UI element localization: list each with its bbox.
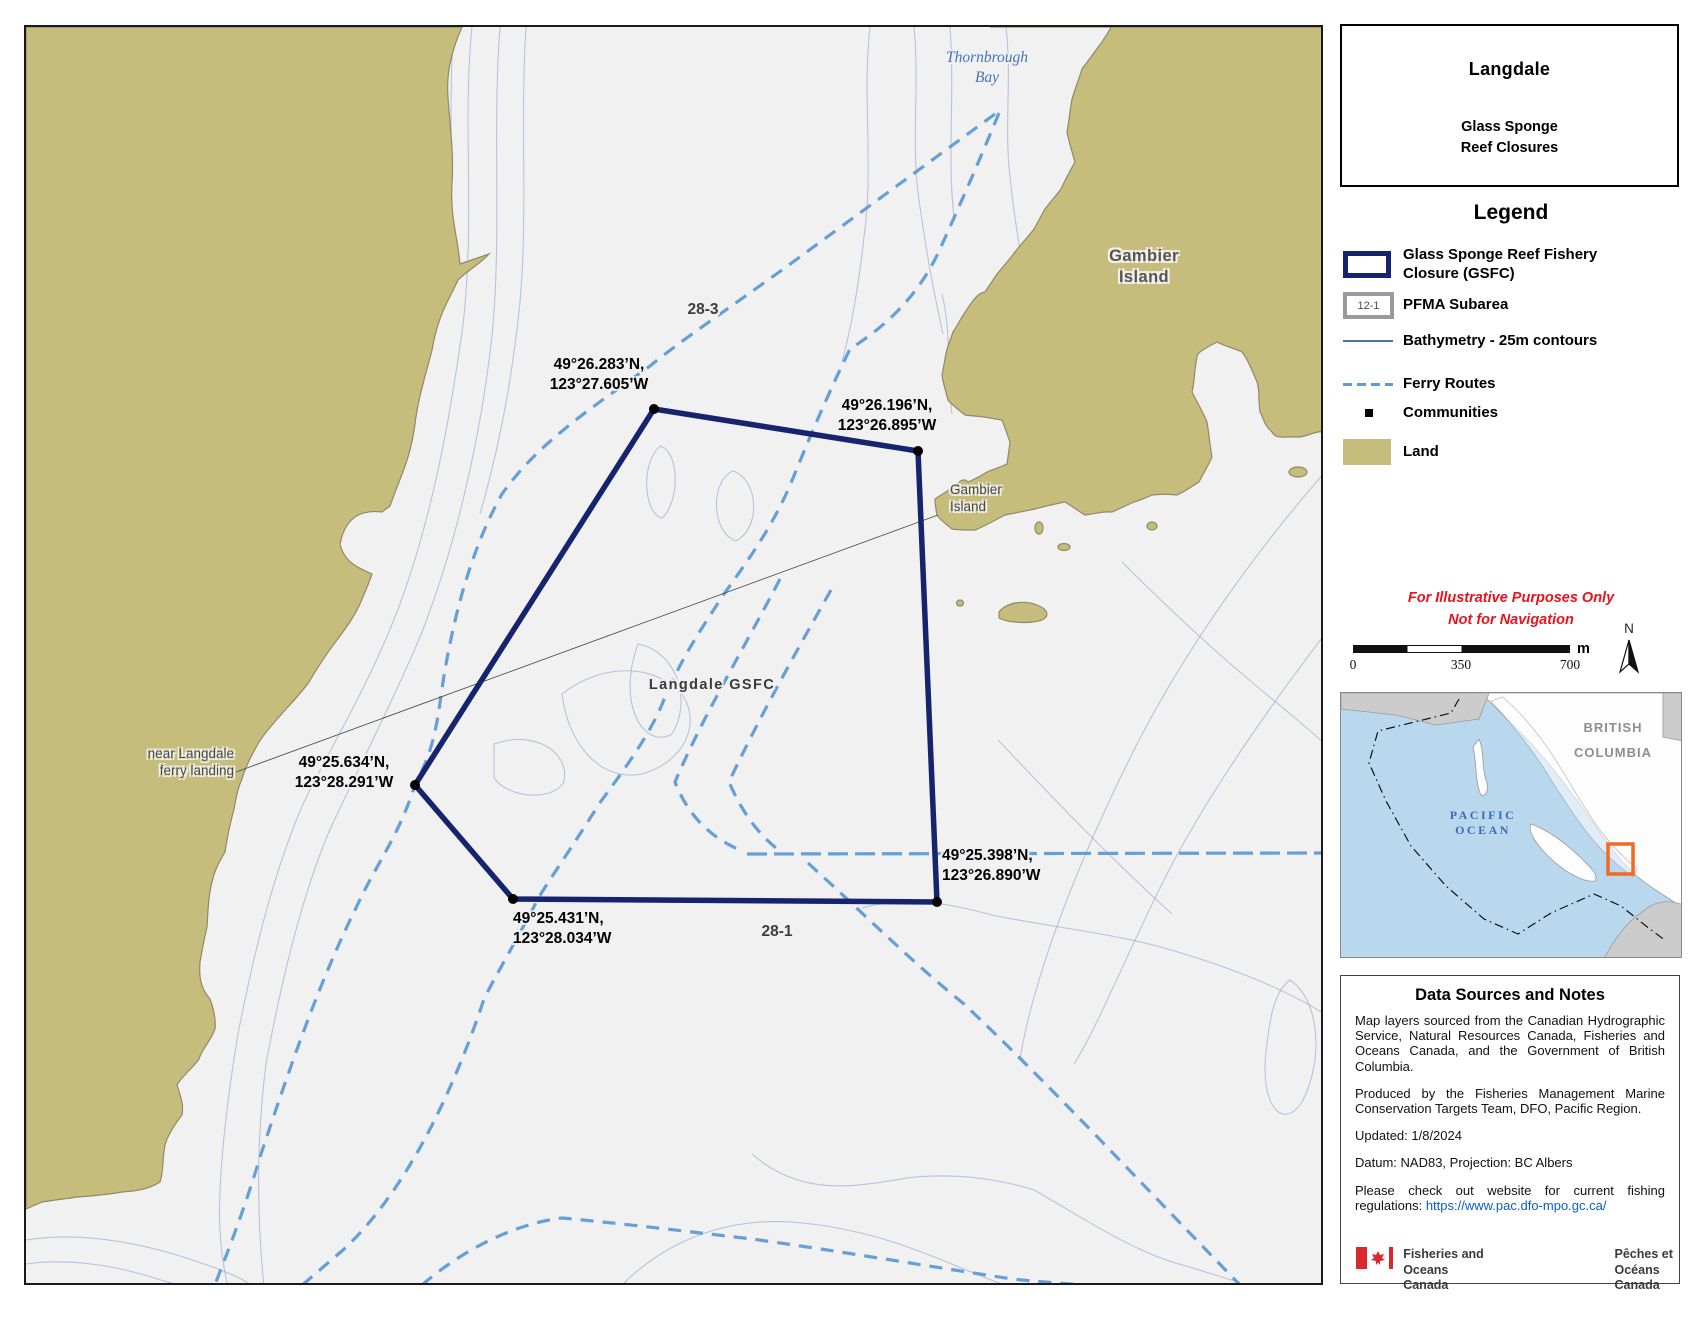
legend-item-pfma: 12-1 PFMA Subarea bbox=[1343, 292, 1678, 319]
scale-unit: m bbox=[1577, 641, 1590, 657]
notes-paragraph-produced: Produced by the Fisheries Management Mar… bbox=[1355, 1086, 1665, 1116]
land-shapes bbox=[26, 27, 1323, 1209]
closure-coordinate-ne: 49°26.196’N, 123°26.895’W bbox=[838, 396, 936, 437]
community-square-swatch bbox=[1365, 409, 1373, 417]
closure-coordinate-se: 49°25.398’N, 123°26.890’W bbox=[942, 846, 1040, 887]
legend-item-land: Land bbox=[1343, 439, 1678, 465]
bathymetry-line-swatch bbox=[1343, 340, 1393, 342]
scale-tick-350: 350 bbox=[1451, 657, 1471, 673]
closure-vertex bbox=[649, 404, 659, 414]
closure-coordinate-west: 49°25.634’N, 123°28.291’W bbox=[295, 753, 393, 794]
map-svg bbox=[26, 27, 1323, 1285]
pfma-swatch: 12-1 bbox=[1343, 292, 1394, 319]
islet bbox=[1035, 522, 1043, 534]
islet bbox=[1147, 522, 1157, 530]
thornbrough-bay-label: Thornbrough Bay bbox=[946, 48, 1028, 88]
inset-haida-gwaii bbox=[1473, 739, 1488, 795]
islet bbox=[957, 600, 964, 606]
closure-vertex bbox=[932, 897, 942, 907]
legend-heading: Legend bbox=[1340, 201, 1682, 225]
ferry-landing-label: near Langdale ferry landing bbox=[86, 746, 234, 780]
ferry-route bbox=[729, 590, 831, 852]
closure-vertex bbox=[508, 894, 518, 904]
legend-item-communities: Communities bbox=[1343, 403, 1678, 423]
inset-vancouver-island bbox=[1530, 824, 1596, 881]
page: { "map": { "place_labels": { "thornbroug… bbox=[0, 0, 1705, 1318]
gsfc-outline-swatch bbox=[1343, 251, 1391, 278]
scale-tick-700: 700 bbox=[1560, 657, 1580, 673]
map-title-box: Langdale Glass Sponge Reef Closures bbox=[1340, 24, 1679, 187]
west-shore-land bbox=[26, 27, 489, 1209]
inset-region-label: BRITISH COLUMBIA bbox=[1574, 720, 1652, 760]
inset-locator-map: BRITISH COLUMBIA PACIFIC OCEAN bbox=[1340, 692, 1682, 958]
notes-datum: Datum: NAD83, Projection: BC Albers bbox=[1355, 1155, 1665, 1170]
land-swatch bbox=[1343, 439, 1391, 465]
scale-tick-0: 0 bbox=[1350, 657, 1357, 673]
notes-updated: Updated: 1/8/2024 bbox=[1355, 1128, 1665, 1143]
legend-item-ferry: Ferry Routes bbox=[1343, 374, 1678, 394]
islet bbox=[999, 602, 1047, 622]
ferry-route bbox=[422, 1218, 1302, 1285]
north-arrow-icon bbox=[1616, 638, 1642, 676]
closure-vertex bbox=[410, 780, 420, 790]
ferry-dash-swatch bbox=[1343, 383, 1393, 386]
map-subtitle: Glass Sponge Reef Closures bbox=[1342, 117, 1677, 159]
data-sources-box: Data Sources and Notes Map layers source… bbox=[1340, 975, 1680, 1284]
scale-bar bbox=[1353, 645, 1570, 653]
map-canvas bbox=[24, 25, 1323, 1285]
north-arrow-label: N bbox=[1624, 621, 1634, 636]
ferry-route bbox=[675, 579, 780, 851]
wordmark-french: Pêches et Océans Canada bbox=[1615, 1247, 1705, 1294]
pfma-subarea-28-3-label: 28-3 bbox=[687, 300, 718, 320]
legend-item-gsfc: Glass Sponge Reef Fishery Closure (GSFC) bbox=[1343, 246, 1678, 284]
pfma-subarea-28-1-label: 28-1 bbox=[761, 922, 792, 942]
closure-coordinate-sw: 49°25.431’N, 123°28.034’W bbox=[513, 909, 611, 950]
islet bbox=[1058, 544, 1070, 551]
ferry-route bbox=[808, 863, 1242, 1285]
closure-coordinate-nw: 49°26.283’N, 123°27.605’W bbox=[550, 355, 648, 396]
legend-item-bathymetry: Bathymetry - 25m contours bbox=[1343, 331, 1678, 351]
gambier-island-label-small: Gambier Island bbox=[950, 481, 1002, 516]
regulations-link[interactable]: https://www.pac.dfo-mpo.gc.ca/ bbox=[1426, 1198, 1607, 1213]
inset-ocean-label: PACIFIC OCEAN bbox=[1450, 808, 1517, 838]
canada-flag-icon bbox=[1356, 1247, 1393, 1269]
inset-alaska-panhandle bbox=[1341, 693, 1489, 725]
inset-usa-region bbox=[1604, 902, 1682, 958]
inset-top-right-region bbox=[1663, 693, 1682, 741]
wordmark-english: Fisheries and Oceans Canada bbox=[1403, 1247, 1512, 1294]
islet bbox=[1289, 467, 1307, 477]
notes-heading: Data Sources and Notes bbox=[1355, 986, 1665, 1005]
notes-paragraph-sources: Map layers sourced from the Canadian Hyd… bbox=[1355, 1013, 1665, 1074]
closure-vertex bbox=[913, 446, 923, 456]
closure-name-label: Langdale GSFC bbox=[649, 676, 775, 695]
notes-regulations: Please check out website for current fis… bbox=[1355, 1183, 1665, 1213]
government-wordmark: Fisheries and Oceans Canada Pêches et Oc… bbox=[1356, 1247, 1705, 1294]
gambier-island-label-large: Gambier Island bbox=[1109, 246, 1179, 288]
map-title: Langdale bbox=[1342, 59, 1677, 80]
